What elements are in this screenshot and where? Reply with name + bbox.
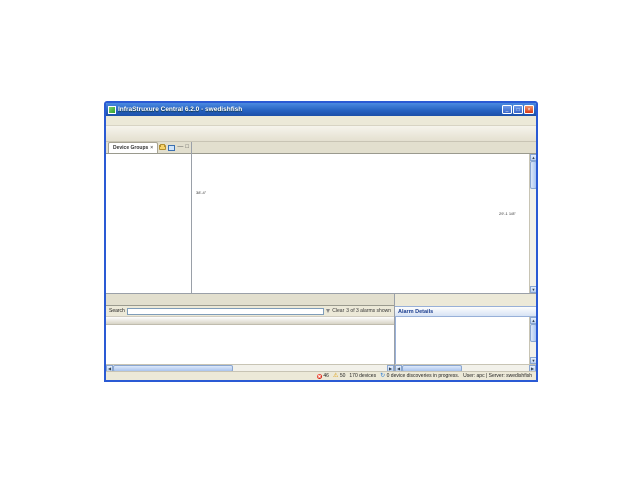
discovery-icon: ↻ — [380, 373, 385, 379]
details-sections — [396, 317, 529, 364]
warning-alarms-status[interactable]: ⚠ 50 — [333, 373, 345, 379]
app-icon — [108, 106, 116, 114]
alarm-search-row: Search Clear 3 of 3 alarms shown — [106, 306, 394, 317]
map-panel: 38'-4" 29'-1 1/8" ▲ ▼ — [192, 142, 536, 293]
app-window: InfraStruxure Central 6.2.0 - swedishfis… — [104, 101, 538, 382]
minimize-panel-icon[interactable]: — — [177, 144, 183, 151]
session-text: User: apc | Server: swedishfish — [463, 373, 532, 379]
details-horizontal-scrollbar[interactable]: ◀ ▶ — [395, 364, 536, 371]
search-label: Search — [109, 308, 125, 314]
alarm-details-panel: Alarm Details ▲ ▼ ◀ ▶ — [395, 294, 536, 371]
device-groups-panel: Device Groups × — □ — [106, 142, 192, 293]
critical-alarms-status[interactable]: 46 — [317, 373, 329, 379]
status-bar: 46 ⚠ 50 170 devices ↻ 0 device discoveri… — [106, 371, 536, 380]
critical-icon — [317, 374, 322, 379]
alarm-count-text: 3 of 3 alarms shown — [346, 308, 391, 314]
window-controls: _ □ × — [502, 105, 534, 114]
bottom-area: Search Clear 3 of 3 alarms shown ◀ ▶ Al — [106, 294, 536, 371]
dimension-label-right: 29'-1 1/8" — [498, 211, 517, 216]
details-body: ▲ ▼ — [395, 317, 536, 364]
scrollbar-thumb[interactable] — [530, 161, 537, 189]
alarms-tab-bar — [106, 294, 394, 306]
device-groups-tree — [106, 154, 191, 293]
details-header: Alarm Details — [395, 306, 536, 317]
map-body: 38'-4" 29'-1 1/8" ▲ ▼ — [192, 154, 536, 293]
details-vertical-scrollbar[interactable]: ▲ ▼ — [529, 317, 536, 364]
warning-icon: ⚠ — [333, 373, 338, 379]
active-alarms-panel: Search Clear 3 of 3 alarms shown ◀ ▶ — [106, 294, 395, 371]
floor-plan-canvas[interactable]: 38'-4" 29'-1 1/8" — [192, 154, 529, 293]
devices-count-text: 170 devices — [349, 373, 376, 379]
window-title: InfraStruxure Central 6.2.0 - swedishfis… — [118, 106, 502, 113]
close-tab-icon[interactable]: × — [150, 145, 153, 151]
warning-count: 50 — [340, 373, 346, 379]
clear-button[interactable]: Clear — [332, 308, 344, 314]
dimension-label-left: 38'-4" — [195, 190, 207, 195]
details-toolbar — [395, 294, 536, 306]
scroll-down-icon[interactable]: ▼ — [530, 286, 537, 293]
tab-device-groups-label: Device Groups — [113, 145, 148, 151]
scroll-up-icon[interactable]: ▲ — [530, 317, 537, 324]
maximize-button[interactable]: □ — [513, 105, 523, 114]
tab-device-groups[interactable]: Device Groups × — [108, 142, 158, 153]
scroll-up-icon[interactable]: ▲ — [530, 154, 537, 161]
alarm-table-body — [106, 325, 394, 364]
device-view-icon[interactable] — [168, 145, 175, 151]
main-area: Device Groups × — □ — [106, 142, 536, 294]
clear-filter-icon[interactable] — [326, 309, 330, 313]
scrollbar-thumb[interactable] — [530, 324, 537, 342]
minimize-button[interactable]: _ — [502, 105, 512, 114]
discovery-status: ↻ 0 device discoveries in progress. — [380, 373, 459, 379]
add-group-icon[interactable] — [159, 145, 166, 150]
device-groups-tab-bar: Device Groups × — □ — [106, 142, 191, 154]
map-vertical-scrollbar[interactable]: ▲ ▼ — [529, 154, 536, 293]
alarms-horizontal-scrollbar[interactable]: ◀ ▶ — [106, 364, 394, 371]
device-groups-toolbar: — □ — [159, 144, 189, 153]
floor-plan-drawing — [192, 154, 529, 293]
maximize-panel-icon[interactable]: □ — [185, 144, 189, 151]
scroll-down-icon[interactable]: ▼ — [530, 357, 537, 364]
search-input[interactable] — [127, 308, 324, 315]
map-tab-bar — [192, 142, 536, 154]
close-button[interactable]: × — [524, 105, 534, 114]
menu-bar — [106, 116, 536, 126]
main-toolbar — [106, 126, 536, 142]
alarm-table-header — [106, 317, 394, 325]
details-title: Alarm Details — [398, 309, 433, 315]
discovery-text: 0 device discoveries in progress. — [387, 373, 460, 379]
critical-count: 46 — [323, 373, 329, 379]
title-bar[interactable]: InfraStruxure Central 6.2.0 - swedishfis… — [106, 103, 536, 116]
